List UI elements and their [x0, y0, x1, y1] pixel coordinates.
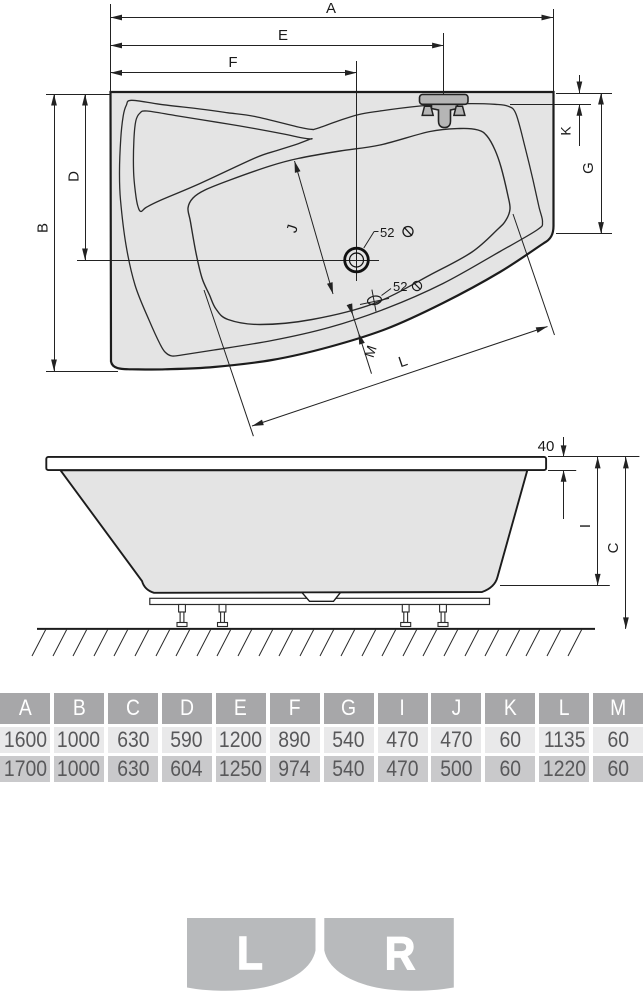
- svg-text:G: G: [580, 162, 597, 174]
- svg-text:52: 52: [393, 279, 407, 294]
- svg-text:R: R: [385, 928, 416, 979]
- svg-text:D: D: [66, 171, 83, 182]
- svg-text:L: L: [237, 928, 263, 979]
- svg-text:40: 40: [538, 438, 555, 455]
- svg-text:K: K: [558, 126, 574, 136]
- svg-text:E: E: [278, 27, 288, 44]
- svg-text:I: I: [577, 524, 594, 528]
- svg-text:52: 52: [380, 225, 394, 240]
- svg-text:C: C: [605, 542, 622, 553]
- svg-text:M: M: [361, 343, 380, 359]
- svg-text:L: L: [396, 352, 409, 371]
- svg-text:B: B: [35, 223, 52, 233]
- svg-text:A: A: [326, 0, 336, 17]
- svg-text:F: F: [228, 54, 237, 71]
